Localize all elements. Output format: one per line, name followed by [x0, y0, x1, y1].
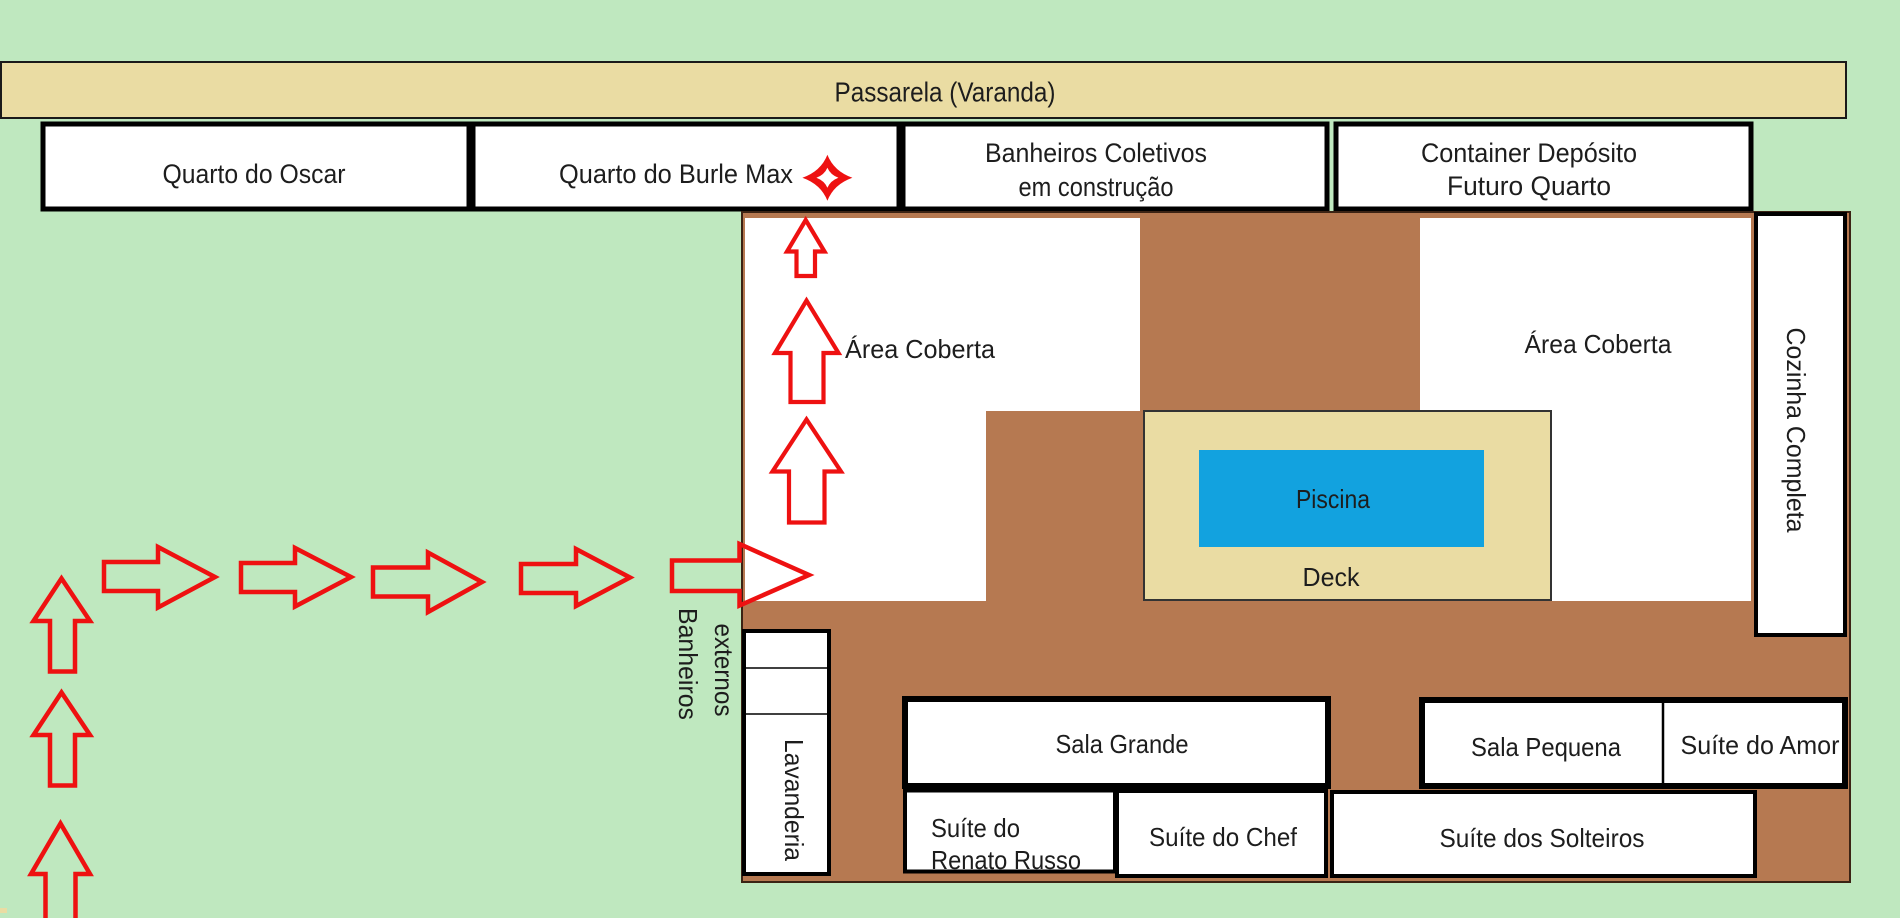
svg-text:em construção: em construção	[1019, 172, 1174, 202]
svg-text:Área Coberta: Área Coberta	[845, 334, 996, 364]
svg-text:Suíte dos Solteiros: Suíte dos Solteiros	[1440, 823, 1645, 853]
svg-text:Lavanderia: Lavanderia	[779, 739, 809, 862]
svg-text:Banheiros Coletivos: Banheiros Coletivos	[985, 138, 1207, 168]
svg-text:Renato Russo: Renato Russo	[931, 845, 1081, 875]
svg-text:Suíte do Amor: Suíte do Amor	[1681, 730, 1840, 760]
svg-text:Passarela (Varanda): Passarela (Varanda)	[835, 77, 1056, 108]
svg-text:Sala Grande: Sala Grande	[1056, 729, 1189, 759]
svg-text:Container Depósito: Container Depósito	[1421, 138, 1637, 168]
svg-text:externos: externos	[709, 624, 739, 717]
svg-text:Sala Pequena: Sala Pequena	[1471, 732, 1621, 762]
svg-text:Banheiros: Banheiros	[673, 608, 703, 720]
svg-text:Área Coberta: Área Coberta	[1525, 329, 1672, 359]
svg-text:Quarto do Oscar: Quarto do Oscar	[163, 159, 346, 189]
svg-text:Cozinha Completa: Cozinha Completa	[1781, 328, 1811, 534]
svg-text:Suíte do: Suíte do	[931, 813, 1020, 843]
svg-text:Futuro Quarto: Futuro Quarto	[1447, 171, 1611, 201]
svg-text:Piscina: Piscina	[1296, 484, 1370, 514]
svg-text:Quarto do Burle Max: Quarto do Burle Max	[559, 159, 793, 189]
svg-text:Deck: Deck	[1303, 562, 1361, 592]
svg-text:Suíte do Chef: Suíte do Chef	[1149, 822, 1298, 852]
